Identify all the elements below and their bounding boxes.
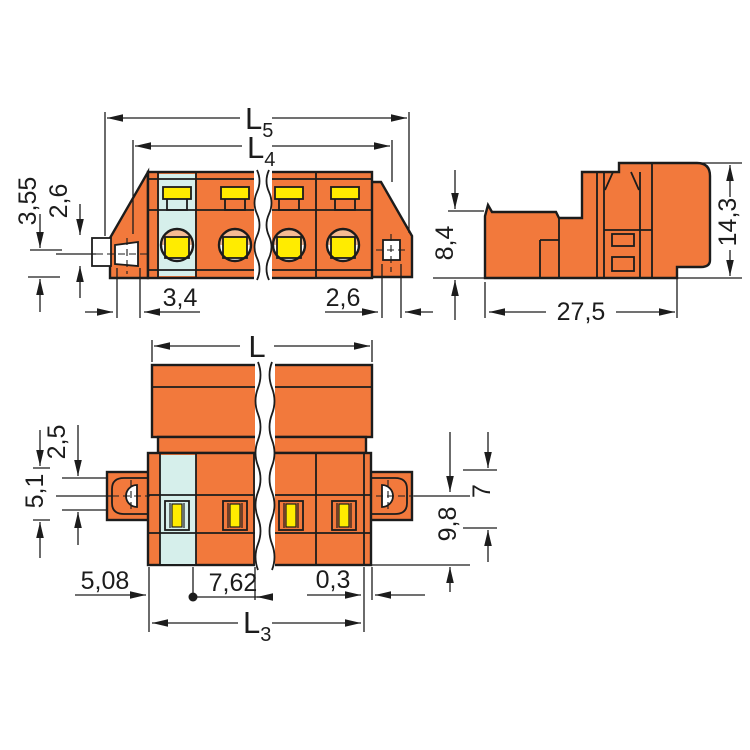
dim-label-3-55: 3,55	[14, 177, 42, 226]
dimension-plan-bottom: 5,08 7,62 0,3 L3	[75, 566, 425, 646]
dim-label-7: 7	[468, 484, 496, 498]
side-view: 8,4 14,3 27,5	[431, 163, 742, 326]
dim-label-8-4: 8,4	[431, 226, 459, 261]
front-break	[254, 168, 272, 282]
dimension-8-4: 8,4	[431, 170, 485, 320]
dim-label-l: L	[248, 329, 265, 364]
dim-label-0-3: 0,3	[316, 566, 351, 594]
dim-label-5-1: 5,1	[21, 474, 49, 509]
dimension-front-left: 3,55 2,6	[14, 177, 96, 312]
dim-label-3-4: 3,4	[163, 284, 198, 312]
dim-label-14-3: 14,3	[714, 198, 742, 247]
technical-drawing-page: L5 L4 3,55 2,6 3,4 2,6	[0, 0, 750, 750]
dim-label-2-5: 2,5	[43, 425, 71, 460]
dimension-plan-left: 2,5 5,1	[21, 425, 108, 558]
dimension-l: L	[152, 329, 372, 364]
front-left-tab	[92, 238, 111, 266]
plan-view: L 2,5 5,1 7 9,8	[21, 329, 497, 646]
front-view: L5 L4 3,55 2,6 3,4 2,6	[14, 101, 433, 318]
dim-label-7-62: 7,62	[209, 569, 258, 597]
dim-label-l3: L3	[243, 605, 271, 646]
connector-dimension-drawing: L5 L4 3,55 2,6 3,4 2,6	[0, 0, 750, 750]
dim-label-2-6-left: 2,6	[45, 184, 73, 219]
dim-label-9-8: 9,8	[434, 507, 462, 542]
dim-label-5-08: 5,08	[81, 567, 130, 595]
dim-label-27-5: 27,5	[557, 298, 606, 326]
dim-label-2-6-right: 2,6	[326, 284, 361, 312]
